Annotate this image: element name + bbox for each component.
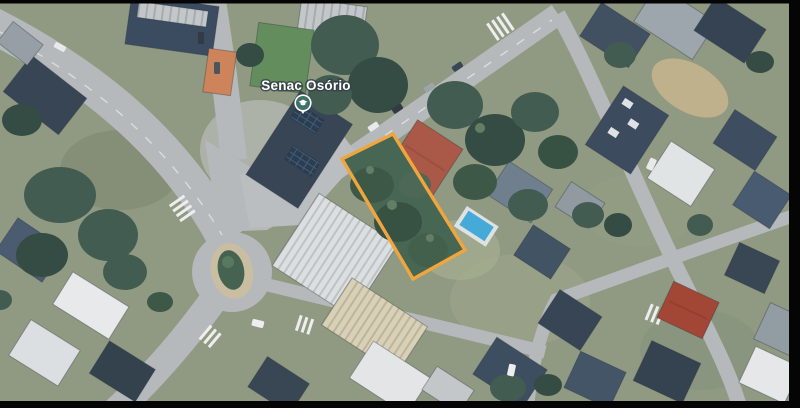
screenshot-frame: Senac Osório [0,0,800,408]
image-haze [0,0,800,408]
letterbox-top [0,0,800,4]
satellite-imagery: Senac Osório [0,0,800,408]
letterbox-right [789,0,800,408]
place-label[interactable]: Senac Osório [261,78,350,93]
letterbox-bottom [0,401,800,408]
satellite-map[interactable]: Senac Osório [0,0,800,408]
